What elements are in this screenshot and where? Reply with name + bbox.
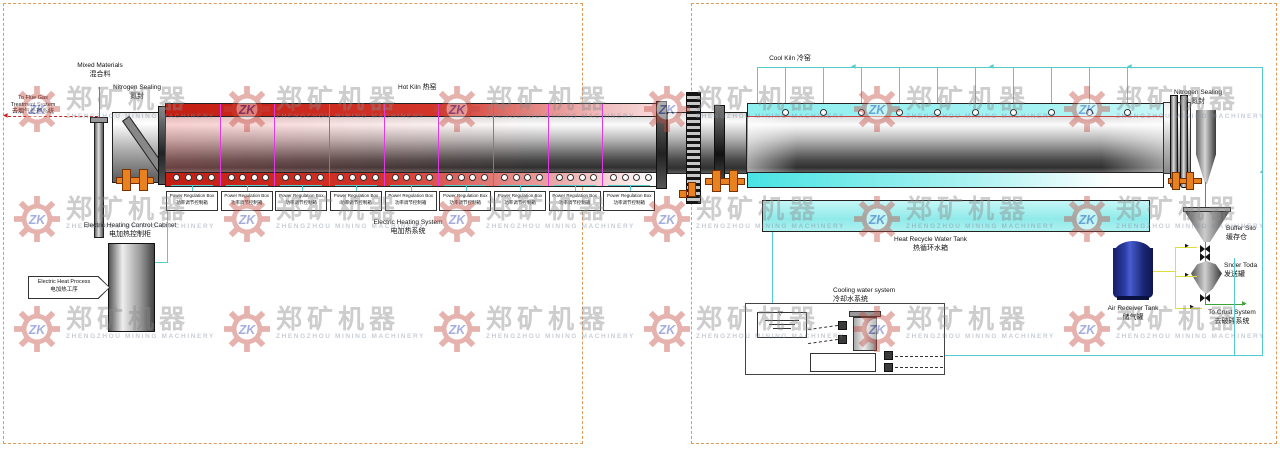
- heating-element: [251, 174, 258, 181]
- power-regulation-box: Power Regulation Box 功率调节控制箱: [549, 191, 601, 211]
- cooling-system-label: Cooling water system冷却水系统: [833, 287, 928, 305]
- heating-element: [349, 174, 356, 181]
- heating-element: [458, 174, 465, 181]
- air-arrow-icon: ▶: [1185, 244, 1189, 249]
- heating-element: [173, 174, 180, 181]
- air-arrow-icon: ▶: [1190, 305, 1194, 310]
- spray-nozzle: [972, 109, 979, 116]
- support-roller: [1186, 172, 1194, 190]
- air-pipe: [1175, 308, 1202, 309]
- heating-element: [392, 174, 399, 181]
- water-pump: [884, 351, 893, 360]
- heating-element: [317, 174, 324, 181]
- water-pump: [884, 363, 893, 372]
- spray-header-elbow: [757, 67, 758, 103]
- to-crush-line: [1205, 304, 1245, 305]
- flue-gas-pipe-line: [8, 116, 98, 117]
- air-tank-label: Air Receiver Tank储气罐: [1097, 305, 1169, 323]
- nitrogen-sealing-left-label: Nitrogen Sealing氮封: [97, 84, 177, 102]
- heating-element: [294, 174, 301, 181]
- riser-arrow-icon: ▲: [1259, 170, 1264, 175]
- heat-recycle-water-tank: [762, 200, 1150, 232]
- spray-drop-pipe: [1089, 67, 1090, 103]
- pump-discharge-line: [895, 367, 943, 368]
- flue-gas-label: To Flue GasTreatment System去烟气处理系统: [4, 95, 62, 117]
- heating-element: [372, 174, 379, 181]
- cool-kiln-shine: [747, 117, 1164, 172]
- mixed-materials-label: Mixed Materials混合料: [62, 62, 138, 80]
- heating-element: [228, 174, 235, 181]
- spray-drop-pipe: [899, 67, 900, 103]
- power-regulation-box: Power Regulation Box 功率调节控制箱: [494, 191, 546, 211]
- support-roller-base: [705, 178, 745, 185]
- tank-to-cooling-pipe: [772, 232, 773, 303]
- support-roller: [1172, 172, 1180, 190]
- cool-kiln-label: Cool Kiln 冷窑: [750, 54, 830, 63]
- spray-nozzle: [1048, 109, 1055, 116]
- heating-element: [524, 174, 531, 181]
- heat-process-arrow: Electric Heat Process电加热工序: [28, 276, 110, 299]
- zone-divider: [438, 104, 439, 186]
- feed-pipe: [94, 122, 104, 238]
- heating-element: [481, 174, 488, 181]
- spray-header-pipe: [757, 67, 1263, 68]
- header-flow-arrow-icon: ◀: [851, 64, 856, 70]
- air-arrow-icon: ▶: [1185, 273, 1189, 278]
- water-tank-label: Heat Recycle Water Tank热循环水箱: [878, 236, 983, 254]
- heating-element: [360, 174, 367, 181]
- spray-nozzle: [858, 109, 865, 116]
- spray-nozzle: [820, 109, 827, 116]
- header-flow-arrow-icon: ◀: [989, 64, 994, 70]
- spray-nozzle: [934, 109, 941, 116]
- spray-drop-pipe: [1127, 67, 1128, 103]
- heating-element: [645, 174, 652, 181]
- to-crush-label: To Crust System去破碎系统: [1200, 309, 1264, 327]
- control-cabinet-label: Electric Heating Control Cabinet电加热控制柜: [70, 222, 190, 240]
- valve-icon: [1200, 253, 1210, 261]
- cool-kiln-top-band: [747, 103, 1164, 117]
- spray-nozzle: [896, 109, 903, 116]
- heating-element: [536, 174, 543, 181]
- power-regulation-box: Power Regulation Box 功率调节控制箱: [385, 191, 437, 211]
- heating-element: [196, 174, 203, 181]
- spray-drop-pipe: [861, 67, 862, 103]
- spray-drop-pipe: [937, 67, 938, 103]
- kiln-shaft: [667, 112, 747, 174]
- valve-icon: [1200, 245, 1210, 253]
- spray-nozzle: [782, 109, 789, 116]
- heating-element: [556, 174, 563, 181]
- header-flow-arrow-icon: ◀: [1127, 64, 1132, 70]
- electric-heating-control-cabinet: [108, 243, 155, 332]
- heating-element: [513, 174, 520, 181]
- cooling-return-pipe: [945, 355, 1263, 356]
- heating-element: [208, 174, 215, 181]
- power-regulation-box: Power Regulation Box 功率调节控制箱: [221, 191, 273, 211]
- air-tank-base: [1117, 296, 1149, 300]
- support-roller: [139, 169, 148, 191]
- process-flow-diagram: Mixed Materials混合料 To Flue GasTreatment …: [0, 0, 1280, 452]
- cabinet-wire: [155, 262, 168, 263]
- spray-drop-pipe: [823, 67, 824, 103]
- pump-discharge-line: [895, 356, 943, 357]
- zone-divider: [493, 104, 494, 186]
- air-pipe: [1153, 271, 1175, 272]
- heating-element: [185, 174, 192, 181]
- air-pipe: [1175, 247, 1176, 309]
- heating-element: [415, 174, 422, 181]
- hot-kiln-top-band: [165, 103, 657, 117]
- water-pump: [838, 335, 847, 344]
- power-regulation-box: Power Regulation Box 功率调节控制箱: [275, 191, 327, 211]
- electric-heating-system-label: Electric Heating System电加热系统: [358, 219, 458, 237]
- heating-element: [337, 174, 344, 181]
- sender-tank-label: Snder Toda发送罐: [1224, 262, 1276, 280]
- power-regulation-box: Power Regulation Box 功率调节控制箱: [330, 191, 382, 211]
- spray-drop-pipe: [785, 67, 786, 103]
- zone-divider: [548, 104, 549, 186]
- hot-kiln-label: Hot Kiln 热窑: [398, 83, 488, 92]
- to-crush-arrow-icon: ▶: [1242, 301, 1247, 307]
- cooling-tower: [853, 317, 877, 351]
- power-regulation-box: Power Regulation Box 功率调节控制箱: [439, 191, 491, 211]
- spray-nozzle: [1086, 109, 1093, 116]
- cooling-tank: ▽: [757, 312, 807, 338]
- spray-drop-pipe: [1051, 67, 1052, 103]
- zone-divider: [384, 104, 385, 186]
- water-pump: [838, 321, 847, 330]
- zone-divider: [329, 104, 330, 186]
- zone-divider: [220, 104, 221, 186]
- hot-kiln-outlet-seal: [656, 101, 667, 189]
- power-regulation-box: Power Regulation Box 功率调节控制箱: [166, 191, 218, 211]
- zk-gear-logo-icon: [644, 306, 690, 352]
- support-roller: [729, 170, 738, 192]
- power-regulation-box: Power Regulation Box 功率调节控制箱: [603, 191, 655, 211]
- buffer-silo-label: Buffer Silo缓存仓: [1226, 225, 1278, 243]
- spray-drop-pipe: [1013, 67, 1014, 103]
- air-receiver-tank: [1113, 248, 1153, 298]
- flue-gas-arrow-icon: ◀: [3, 113, 8, 119]
- valve-icon: [1200, 294, 1210, 302]
- buffer-silo-rim: [1183, 207, 1231, 212]
- support-roller: [679, 190, 687, 198]
- spray-nozzle: [1124, 109, 1131, 116]
- cooling-basin: [810, 353, 876, 372]
- spray-drop-pipe: [975, 67, 976, 103]
- cool-kiln-bottom-band: [747, 172, 1164, 188]
- heating-element: [579, 174, 586, 181]
- hot-kiln-heat-tint: [165, 117, 657, 172]
- support-roller: [688, 182, 696, 197]
- heating-element: [501, 174, 508, 181]
- zone-divider: [274, 104, 275, 186]
- spray-nozzle: [1010, 109, 1017, 116]
- support-roller: [122, 169, 131, 191]
- zone-divider: [602, 104, 603, 186]
- cabinet-wire: [167, 209, 168, 262]
- support-roller: [712, 170, 721, 192]
- heating-element: [622, 174, 629, 181]
- vent-pipe: [1234, 258, 1235, 355]
